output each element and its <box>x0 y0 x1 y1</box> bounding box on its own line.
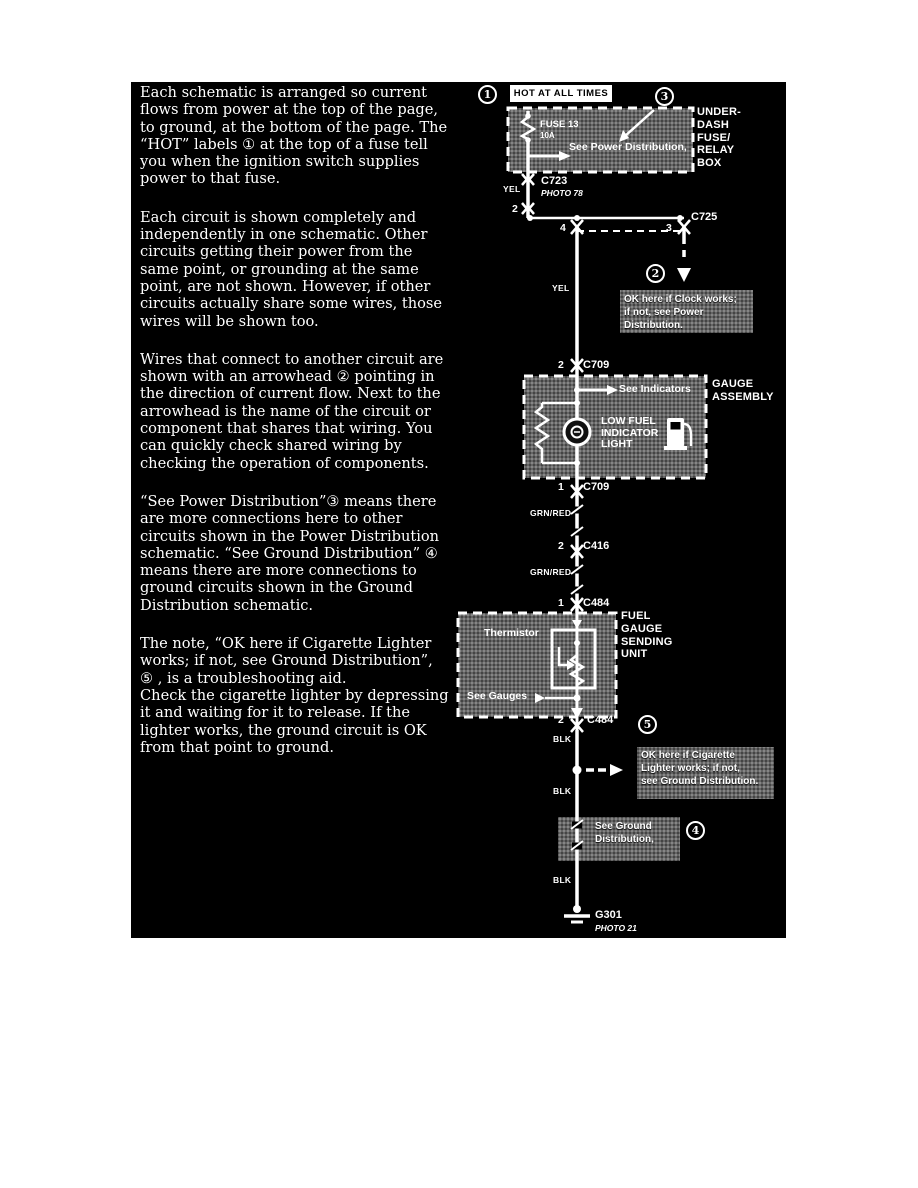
callout-4: 4 <box>686 821 705 840</box>
pin-number-c709-top: 2 <box>558 359 564 371</box>
junction-dot <box>525 137 531 143</box>
thermistor-label: Thermistor <box>484 627 539 639</box>
callout-3: 3 <box>655 87 674 106</box>
hot-at-all-times-label: HOT AT ALL TIMES <box>510 85 612 102</box>
dashed-arrow-icon <box>586 764 623 776</box>
photo-78-ref: PHOTO 78 <box>541 188 583 198</box>
pin-number-c416: 2 <box>558 540 564 552</box>
pin-number-c709-bottom: 1 <box>558 481 564 493</box>
junction-dot <box>527 215 533 221</box>
wire-color-grn-red: GRN/RED <box>530 567 571 577</box>
connector-c725-label: C725 <box>691 211 717 223</box>
ground-g301-label: G301 <box>595 909 622 921</box>
callout-5: 5 <box>638 715 657 734</box>
lamp-icon <box>564 419 590 445</box>
gauge-assembly-label: GAUGE ASSEMBLY <box>712 378 774 404</box>
pin-number-c725-4: 4 <box>560 222 566 234</box>
cigarette-lighter-note: OK here if Cigarette Lighter works; if n… <box>641 750 773 788</box>
see-gauges-note: See Gauges <box>467 690 527 702</box>
callout-2: 2 <box>646 264 665 283</box>
see-indicators-note: See Indicators <box>619 383 691 395</box>
wiring-schematic <box>131 82 786 938</box>
manual-page: Each schematic is arranged so current fl… <box>0 0 918 1188</box>
connector-c484-label: C484 <box>583 597 609 609</box>
pin-number-c484-top: 1 <box>558 597 564 609</box>
connector-c709-label: C709 <box>583 359 609 371</box>
fuel-gauge-sending-unit-label: FUEL GAUGE SENDING UNIT <box>621 610 673 661</box>
see-power-distribution-note: See Power Distribution, <box>569 141 687 153</box>
underdash-fusebox <box>508 108 693 172</box>
connector-c723-label: C723 <box>541 175 567 187</box>
connector-c709-label: C709 <box>583 481 609 493</box>
junction-dot <box>574 215 580 221</box>
fuse-rating: 10A <box>540 131 555 140</box>
low-fuel-indicator-label: LOW FUEL INDICATOR LIGHT <box>601 416 658 451</box>
callout-1: 1 <box>478 85 497 104</box>
ground-icon <box>564 905 590 922</box>
pin-number-c723: 2 <box>512 203 518 215</box>
underdash-fusebox-label: UNDER- DASH FUSE/ RELAY BOX <box>697 106 741 170</box>
connector-c416-label: C416 <box>583 540 609 552</box>
wire-color-yel: YEL <box>503 184 520 194</box>
junction-dot <box>573 766 582 775</box>
wire-color-blk: BLK <box>553 786 571 796</box>
clock-troubleshooting-note: OK here if Clock works; if not, see Powe… <box>624 294 752 332</box>
junction-dot <box>574 640 580 646</box>
wire-color-blk: BLK <box>553 734 571 744</box>
connector-c484-label: C484 <box>587 714 613 726</box>
pin-number-c725-3: 3 <box>666 222 672 234</box>
photo-21-ref: PHOTO 21 <box>595 923 637 933</box>
junction-dot <box>525 113 531 119</box>
wire-color-yel: YEL <box>552 283 569 293</box>
see-ground-distribution-note: See Ground Distribution, <box>595 821 675 847</box>
fuse-label: FUSE 13 <box>540 119 579 130</box>
schematic-explanation-panel: Each schematic is arranged so current fl… <box>131 82 786 938</box>
arrowhead-down-icon <box>677 268 691 282</box>
wire-color-blk: BLK <box>553 875 571 885</box>
wire-color-grn-red: GRN/RED <box>530 508 571 518</box>
pin-number-c484-bottom: 2 <box>558 714 564 726</box>
